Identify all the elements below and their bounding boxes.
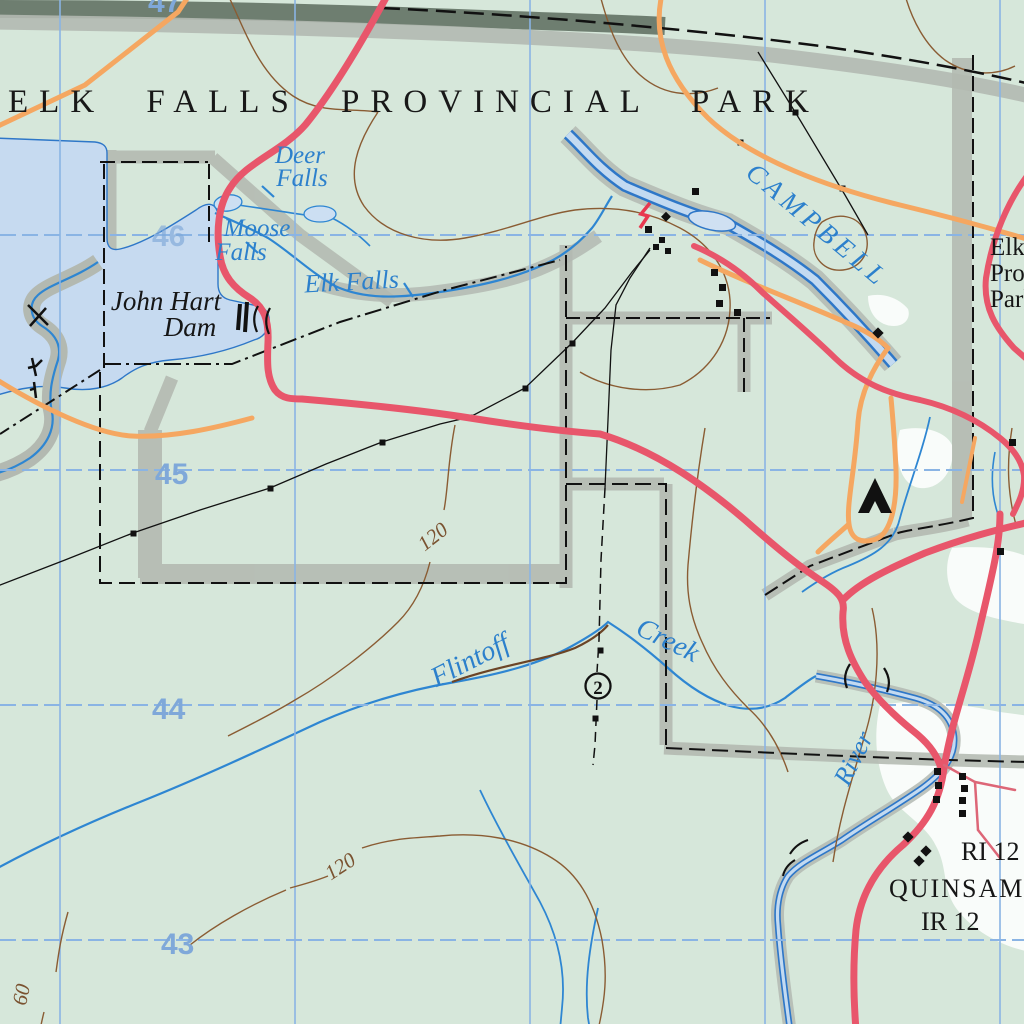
- park-edge-label-3: Park: [990, 286, 1024, 313]
- grid-number-47: 47: [148, 0, 181, 19]
- john-hart-dam-label-2: Dam: [163, 312, 217, 342]
- topo-map[interactable]: 2 ELK FALLS PROVINCIAL PARK Deer Falls M…: [0, 0, 1024, 1024]
- moose-falls-label-2: Falls: [214, 239, 266, 266]
- route-marker-2: 2: [586, 674, 611, 700]
- grid-number-45: 45: [155, 458, 188, 491]
- reserve-label-ri12: RI 12: [961, 837, 1020, 866]
- grid-number-43: 43: [161, 928, 194, 961]
- elk-falls-label: Elk Falls: [303, 265, 400, 299]
- map-canvas: 2 ELK FALLS PROVINCIAL PARK Deer Falls M…: [0, 0, 1024, 1024]
- route-marker-2-label: 2: [593, 678, 603, 699]
- reserve-label-quinsam: QUINSAM: [889, 874, 1024, 903]
- park-title: ELK FALLS PROVINCIAL PARK: [8, 84, 820, 120]
- grid-number-44: 44: [152, 693, 186, 726]
- reserve-label-ir12: IR 12: [921, 907, 980, 936]
- grid-number-46: 46: [152, 220, 185, 253]
- moose-falls-label-1: Moose: [223, 215, 291, 242]
- park-edge-label-1: Elk: [990, 234, 1024, 261]
- park-edge-label-2: Prov: [990, 260, 1024, 287]
- deer-falls-label-2: Falls: [275, 165, 327, 192]
